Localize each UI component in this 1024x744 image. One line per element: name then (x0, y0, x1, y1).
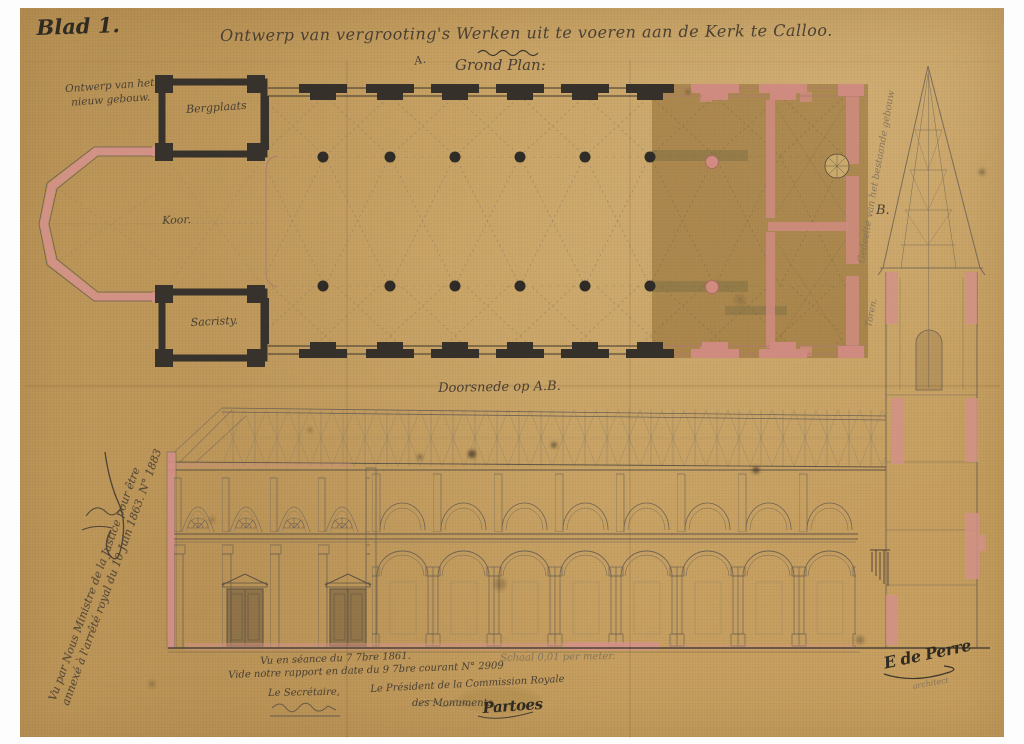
plan-title: Grond Plan: (455, 56, 546, 76)
section-title: Doorsnede op A.B. (438, 379, 561, 398)
secretary-label: Le Secrétaire, (268, 686, 340, 700)
sheet-number: Blad 1. (36, 11, 120, 41)
president-signature: Partoes (482, 695, 543, 719)
scanned-sheet: Blad 1. Ontwerp van vergrooting's Werken… (0, 0, 1024, 744)
architectural-drawing (0, 0, 1024, 744)
existing-building-patch (652, 84, 868, 358)
scale-note: Schaal 0,01 per meter. (500, 650, 615, 665)
room-label-koor: Koor. (162, 213, 191, 228)
section-drawing (167, 408, 990, 652)
title-underline-squiggle (478, 51, 538, 56)
